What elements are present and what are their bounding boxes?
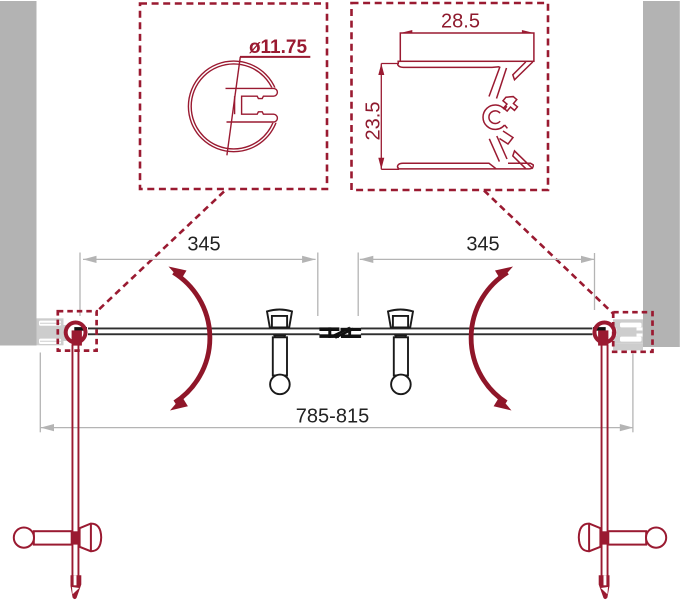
svg-text:ø11.75: ø11.75 [249, 37, 308, 58]
svg-text:28.5: 28.5 [441, 11, 480, 33]
svg-text:345: 345 [187, 233, 220, 255]
svg-text:785-815: 785-815 [296, 406, 369, 428]
svg-text:345: 345 [466, 233, 499, 255]
svg-text:23.5: 23.5 [362, 102, 384, 141]
